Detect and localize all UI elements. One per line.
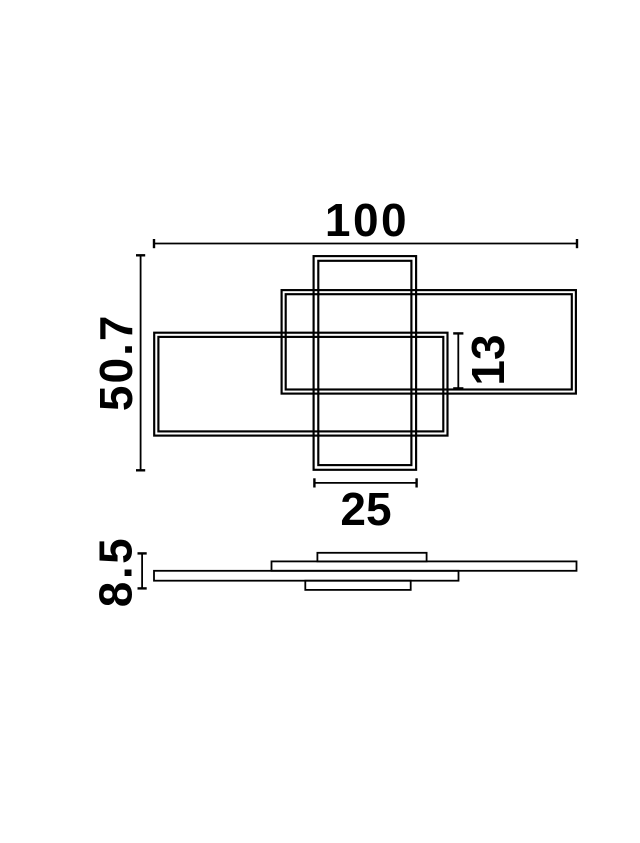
svg-text:100: 100 [325,194,409,246]
svg-text:8.5: 8.5 [90,536,142,607]
svg-text:50.7: 50.7 [90,314,142,412]
svg-text:25: 25 [340,483,391,535]
svg-text:13: 13 [462,334,514,385]
